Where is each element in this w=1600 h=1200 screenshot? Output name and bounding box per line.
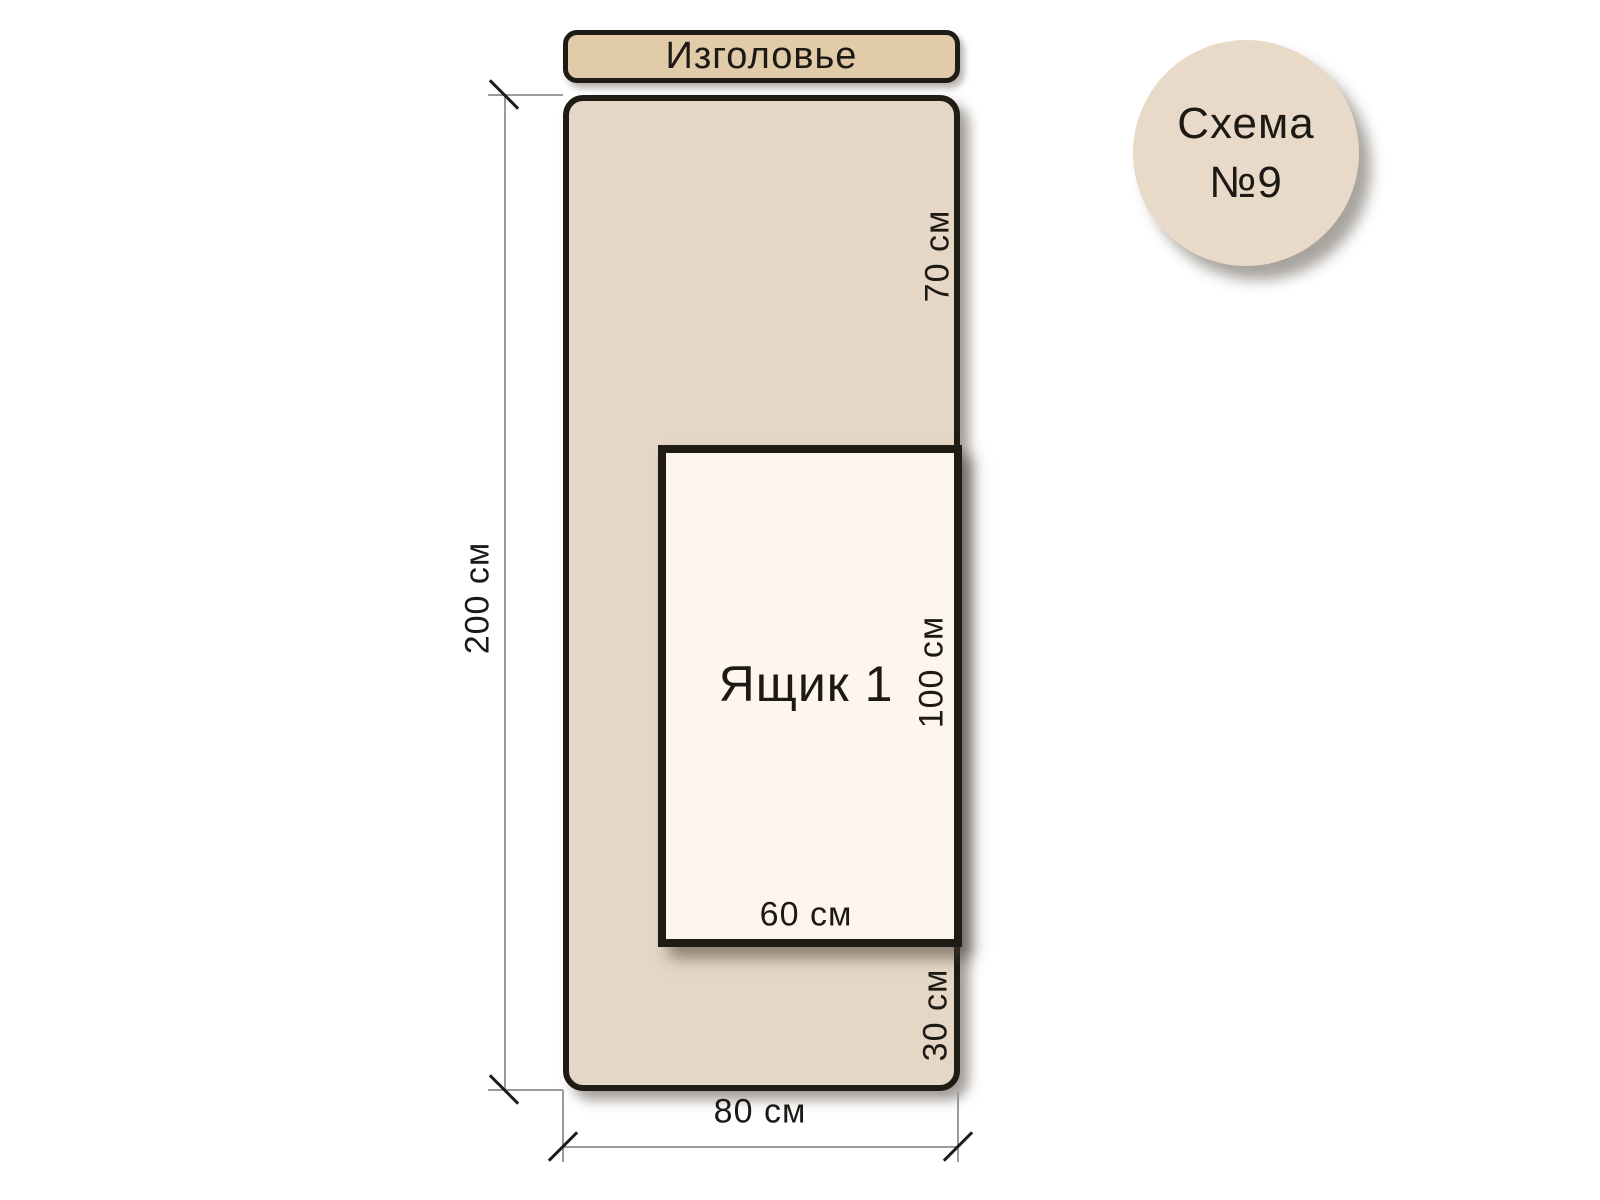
dimension-line-bed-height — [504, 95, 506, 1091]
badge-line-2: №9 — [1209, 153, 1283, 212]
dim-label-top-offset: 70 см — [919, 210, 958, 303]
headboard-label: Изголовье — [666, 35, 858, 78]
extension-line-right — [957, 1092, 959, 1162]
badge-line-1: Схема — [1177, 94, 1314, 153]
dim-label-bed-width: 80 см — [714, 1093, 807, 1132]
extension-line-top — [488, 94, 563, 96]
dim-label-bottom-offset: 30 см — [917, 969, 956, 1062]
extension-line-bottom — [488, 1089, 563, 1091]
scheme-number-badge: Схема №9 — [1133, 40, 1359, 266]
dimension-line-bed-width — [563, 1146, 958, 1148]
dim-label-drawer-width: 60 см — [760, 896, 853, 935]
dim-label-bed-height: 200 см — [459, 542, 498, 655]
headboard-plate: Изголовье — [563, 30, 960, 83]
scheme-canvas: Изголовье Ящик 1 70 см 100 см 30 см 60 с… — [0, 0, 1600, 1200]
dim-label-drawer-height: 100 см — [913, 616, 952, 729]
extension-line-left — [562, 1090, 564, 1162]
drawer-label: Ящик 1 — [719, 655, 894, 713]
